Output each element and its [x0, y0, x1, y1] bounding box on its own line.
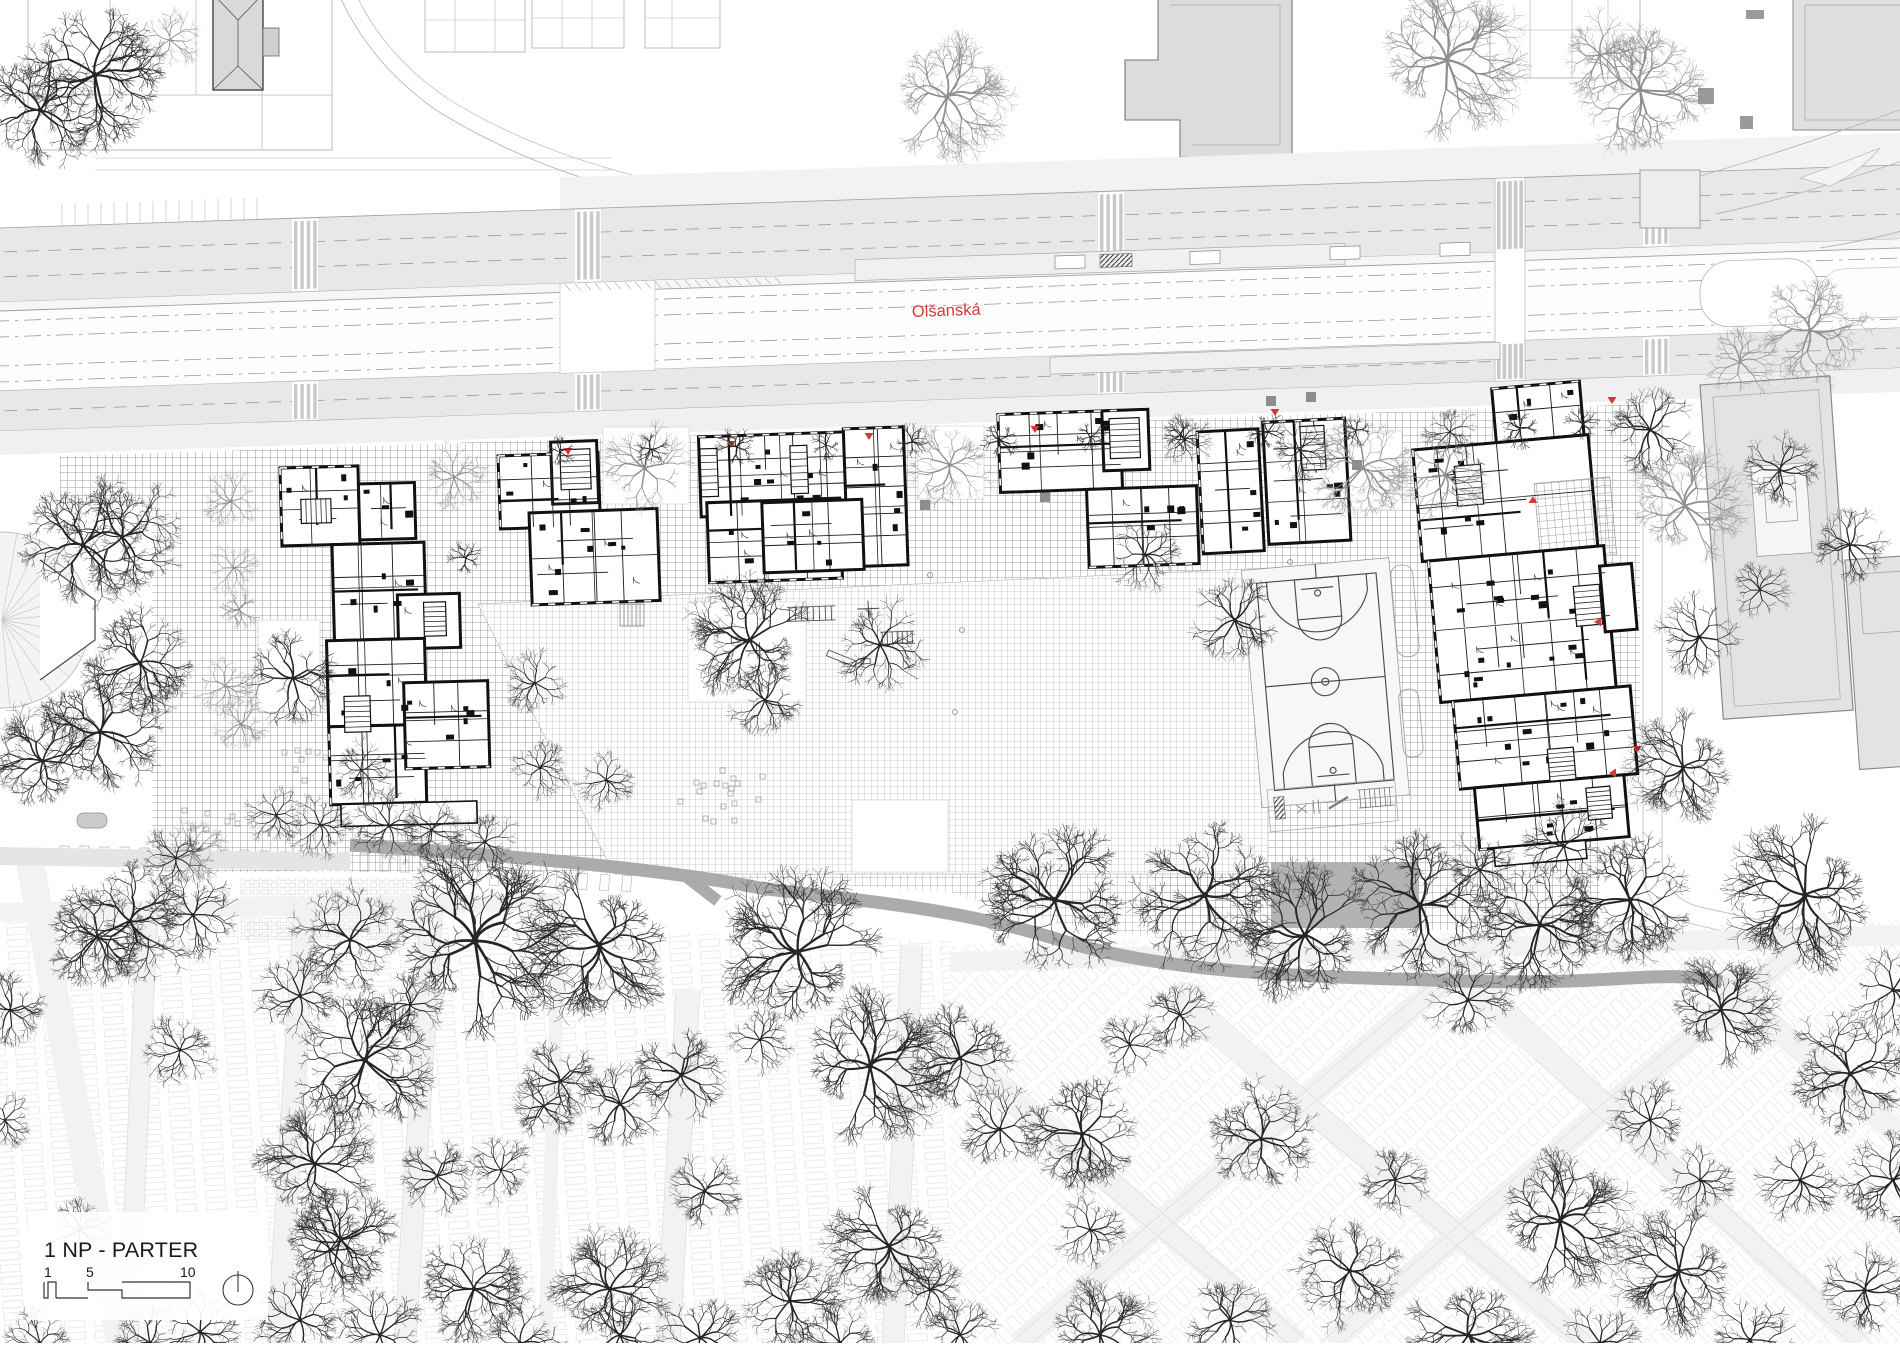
svg-text:1: 1	[44, 1264, 52, 1280]
svg-text:Olšanská: Olšanská	[912, 301, 982, 321]
svg-text:5: 5	[86, 1264, 94, 1280]
svg-text:10: 10	[180, 1264, 196, 1280]
svg-text:1 NP - PARTER: 1 NP - PARTER	[44, 1238, 198, 1262]
